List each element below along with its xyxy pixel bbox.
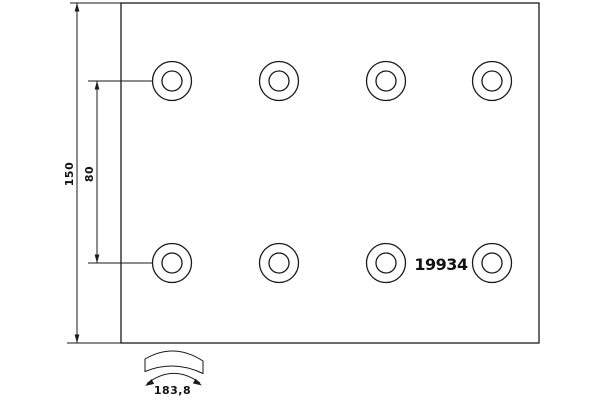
hole-spacing-dimension-label: 80	[83, 166, 96, 182]
rivet-hole-outer	[367, 244, 406, 283]
rivet-hole-inner	[269, 253, 289, 273]
rivet-hole-outer	[473, 62, 512, 101]
lining-plate-outline	[121, 3, 539, 343]
drawing-canvas: 150 80 19934 183,8	[0, 0, 600, 400]
rivet-hole-inner	[482, 71, 502, 91]
rivet-holes-top-row	[153, 62, 512, 101]
rivet-hole-outer	[153, 244, 192, 283]
arc-dimension-line	[147, 373, 200, 383]
hole-spacing-dimension: 80	[83, 81, 100, 263]
rivet-hole-outer	[153, 62, 192, 101]
extension-lines	[67, 3, 153, 343]
height-dimension-label: 150	[63, 162, 76, 186]
rivet-hole	[153, 62, 192, 101]
lining-curvature-profile	[145, 351, 203, 374]
brake-lining-drawing: 150 80 19934 183,8	[0, 0, 600, 400]
arrow-down-icon	[75, 335, 80, 344]
arrow-up-icon	[75, 3, 80, 12]
arrow-down-icon	[95, 255, 100, 264]
rivet-hole-inner	[269, 71, 289, 91]
rivet-hole	[367, 62, 406, 101]
rivet-hole-inner	[376, 253, 396, 273]
rivet-hole	[473, 244, 512, 283]
rivet-hole-inner	[162, 253, 182, 273]
rivet-hole-outer	[260, 244, 299, 283]
part-number-label: 19934	[414, 255, 468, 274]
rivet-hole	[260, 244, 299, 283]
rivet-hole-outer	[473, 244, 512, 283]
height-dimension: 150	[63, 3, 80, 343]
arc-length-dimension-label: 183,8	[154, 384, 191, 397]
rivet-hole	[367, 244, 406, 283]
rivet-hole-inner	[482, 253, 502, 273]
rivet-hole-outer	[260, 62, 299, 101]
rivet-hole-inner	[376, 71, 396, 91]
arrow-up-icon	[95, 81, 100, 90]
rivet-hole-outer	[367, 62, 406, 101]
curvature-section-view: 183,8	[145, 351, 203, 397]
rivet-hole	[260, 62, 299, 101]
rivet-hole	[153, 244, 192, 283]
rivet-hole	[473, 62, 512, 101]
rivet-hole-inner	[162, 71, 182, 91]
